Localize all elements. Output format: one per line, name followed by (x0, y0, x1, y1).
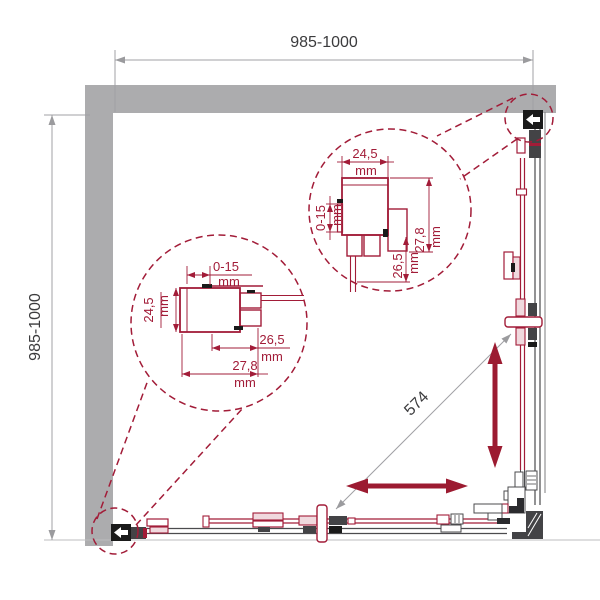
svg-text:26,5: 26,5 (259, 332, 284, 347)
svg-text:0-15: 0-15 (213, 259, 239, 274)
svg-text:27,8: 27,8 (232, 358, 257, 373)
detail-dim-overall: 27,8 mm (182, 334, 268, 390)
arrow-horizontal-icon (346, 479, 468, 494)
detail-dim-overall: 27,8 mm (390, 178, 443, 253)
arrow-vertical-icon (488, 342, 503, 468)
detail-dim-depth: 24,5 mm (337, 146, 394, 178)
svg-text:mm: mm (355, 163, 377, 178)
dim-depth-label: 985-1000 (27, 293, 44, 361)
handle-bottom (299, 505, 355, 542)
door-bracket-bottom (253, 513, 283, 532)
svg-text:mm: mm (406, 252, 421, 274)
wall-bracket-bottom-left (111, 519, 168, 541)
svg-text:mm: mm (156, 295, 171, 317)
handle-right (505, 299, 542, 347)
door-knob-bottom (317, 505, 327, 542)
svg-text:24,5: 24,5 (352, 146, 377, 161)
detail-dim-adjust: 0-15 mm (187, 259, 252, 289)
dim-width-label: 985-1000 (290, 34, 358, 51)
detail-dim-depth: 24,5 mm (141, 288, 176, 332)
dim-diagonal-label: 574 (401, 388, 432, 419)
technical-drawing-page: 985-1000 985-1000 (0, 0, 600, 600)
svg-text:24,5: 24,5 (141, 297, 156, 322)
svg-text:mm: mm (428, 226, 443, 248)
wall-top (85, 85, 556, 113)
shower-enclosure-plan-drawing: 985-1000 985-1000 (0, 0, 600, 600)
detail-view-top-right-profile: 24,5 mm 0-15 mm 26,5 mm 27,8 (309, 129, 471, 292)
svg-text:mm: mm (234, 375, 256, 390)
slide-direction-arrows (346, 342, 503, 494)
door-bracket-right (504, 252, 520, 279)
svg-text:mm: mm (218, 274, 240, 289)
svg-text:26,5: 26,5 (390, 253, 405, 278)
svg-text:mm: mm (329, 204, 344, 226)
rollers-bottom (437, 504, 510, 532)
detail-view-bottom-left-profile: 0-15 mm 24,5 mm 26,5 mm 27,8 mm (131, 235, 307, 411)
svg-text:mm: mm (261, 349, 283, 364)
wall-left (85, 85, 113, 546)
door-knob-right (505, 317, 542, 327)
wall-bracket-top-right (517, 110, 543, 158)
svg-text:0-15: 0-15 (313, 205, 328, 231)
svg-text:27,8: 27,8 (412, 227, 427, 252)
wall-profile-section-horizontal (180, 284, 304, 332)
